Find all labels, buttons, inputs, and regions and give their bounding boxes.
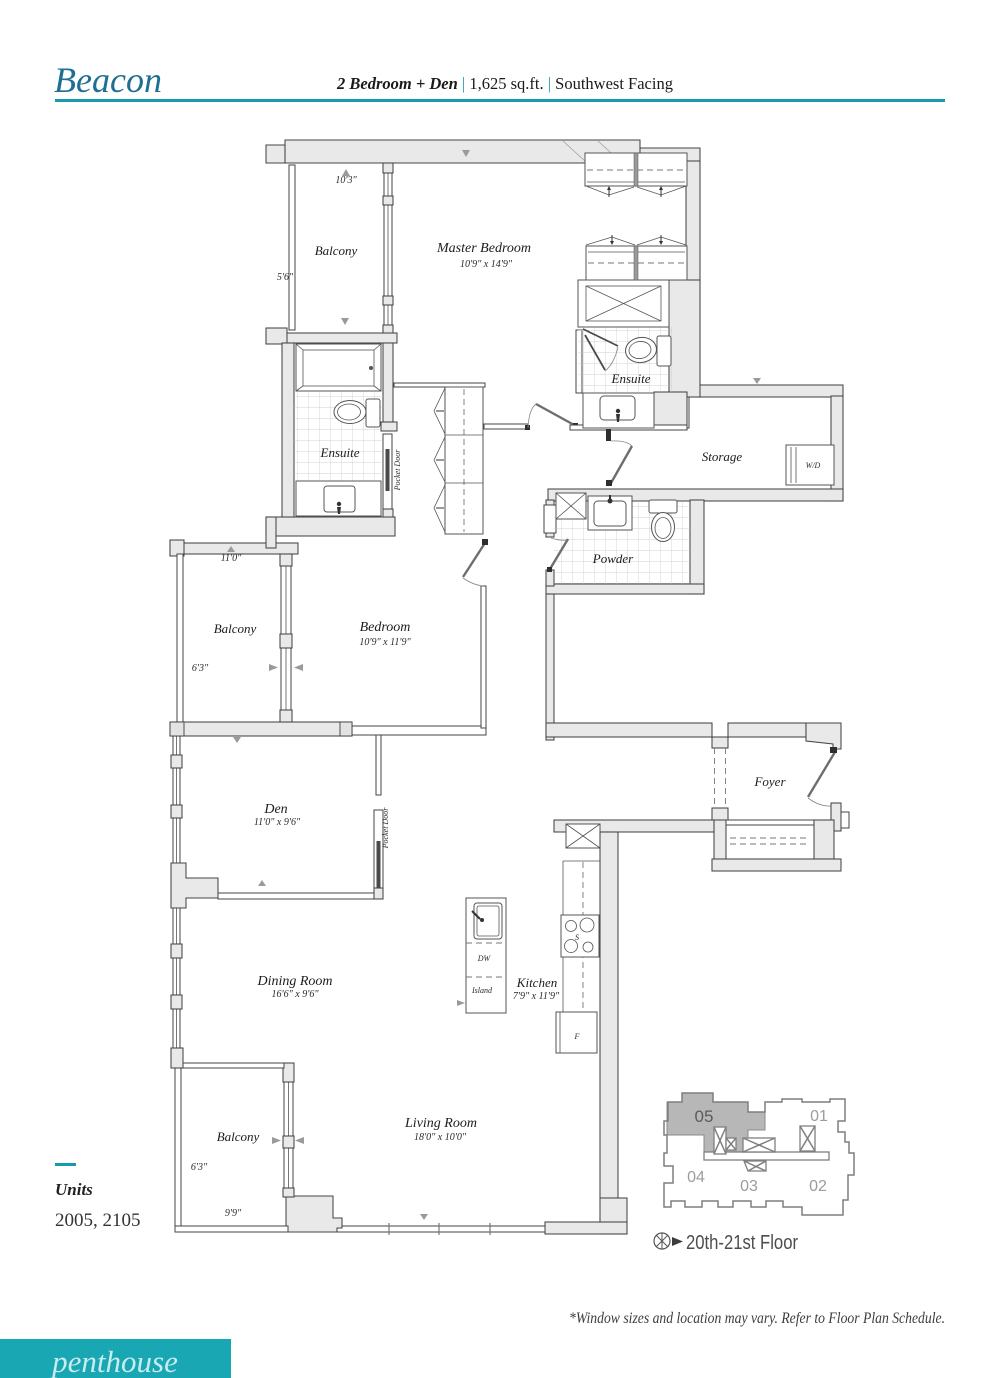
svg-text:20th-21st Floor: 20th-21st Floor [686, 1232, 798, 1254]
svg-text:DW: DW [477, 954, 492, 963]
svg-text:9'9": 9'9" [225, 1208, 242, 1219]
svg-text:6'3": 6'3" [192, 663, 209, 674]
svg-text:Ensuite: Ensuite [320, 445, 360, 460]
svg-text:6'3": 6'3" [191, 1162, 208, 1173]
svg-text:Kitchen: Kitchen [516, 975, 557, 990]
svg-text:Pocket Door: Pocket Door [393, 449, 402, 492]
svg-text:01: 01 [810, 1108, 828, 1125]
svg-text:W/D: W/D [806, 461, 821, 470]
svg-text:Pocket Door: Pocket Door [381, 807, 390, 850]
svg-text:*Window sizes and location may: *Window sizes and location may vary. Ref… [569, 1310, 945, 1327]
svg-text:5'6": 5'6" [277, 272, 294, 283]
svg-text:Units: Units [55, 1180, 93, 1199]
svg-text:05: 05 [695, 1107, 714, 1126]
svg-text:Living Room: Living Room [404, 1116, 477, 1131]
svg-text:2 Bedroom + Den | 1,625 sq.f: 2 Bedroom + Den | 1,625 sq.ft. | Southwe… [336, 74, 673, 93]
svg-text:F: F [574, 1032, 580, 1041]
svg-text:Master Bedroom: Master Bedroom [436, 241, 531, 256]
svg-text:10'9" x 14'9": 10'9" x 14'9" [460, 259, 513, 270]
svg-text:Ensuite: Ensuite [611, 371, 651, 386]
svg-text:7'9" x 11'9": 7'9" x 11'9" [513, 991, 560, 1002]
svg-text:Dining Room: Dining Room [256, 974, 332, 989]
svg-text:16'6" x 9'6": 16'6" x 9'6" [271, 989, 319, 1000]
svg-text:penthouse: penthouse [50, 1344, 178, 1378]
svg-text:03: 03 [740, 1178, 758, 1195]
svg-text:Powder: Powder [592, 551, 634, 566]
svg-text:S: S [575, 933, 579, 942]
svg-text:Bedroom: Bedroom [360, 620, 411, 635]
svg-text:Balcony: Balcony [315, 243, 358, 258]
svg-text:10'9" x 11'9": 10'9" x 11'9" [359, 637, 411, 648]
svg-text:Balcony: Balcony [217, 1129, 260, 1144]
svg-text:Storage: Storage [702, 449, 743, 464]
svg-text:18'0" x 10'0": 18'0" x 10'0" [414, 1132, 467, 1143]
svg-text:Island: Island [471, 986, 493, 995]
svg-text:10'3": 10'3" [335, 175, 357, 186]
svg-text:11'0": 11'0" [221, 553, 242, 564]
svg-text:2005, 2105: 2005, 2105 [55, 1210, 141, 1231]
svg-text:04: 04 [687, 1169, 705, 1186]
svg-text:02: 02 [809, 1178, 827, 1195]
svg-text:Balcony: Balcony [214, 621, 257, 636]
svg-text:Foyer: Foyer [753, 774, 786, 789]
svg-text:11'0" x 9'6": 11'0" x 9'6" [254, 817, 301, 828]
svg-text:Beacon: Beacon [54, 60, 162, 100]
svg-text:Den: Den [263, 802, 287, 817]
